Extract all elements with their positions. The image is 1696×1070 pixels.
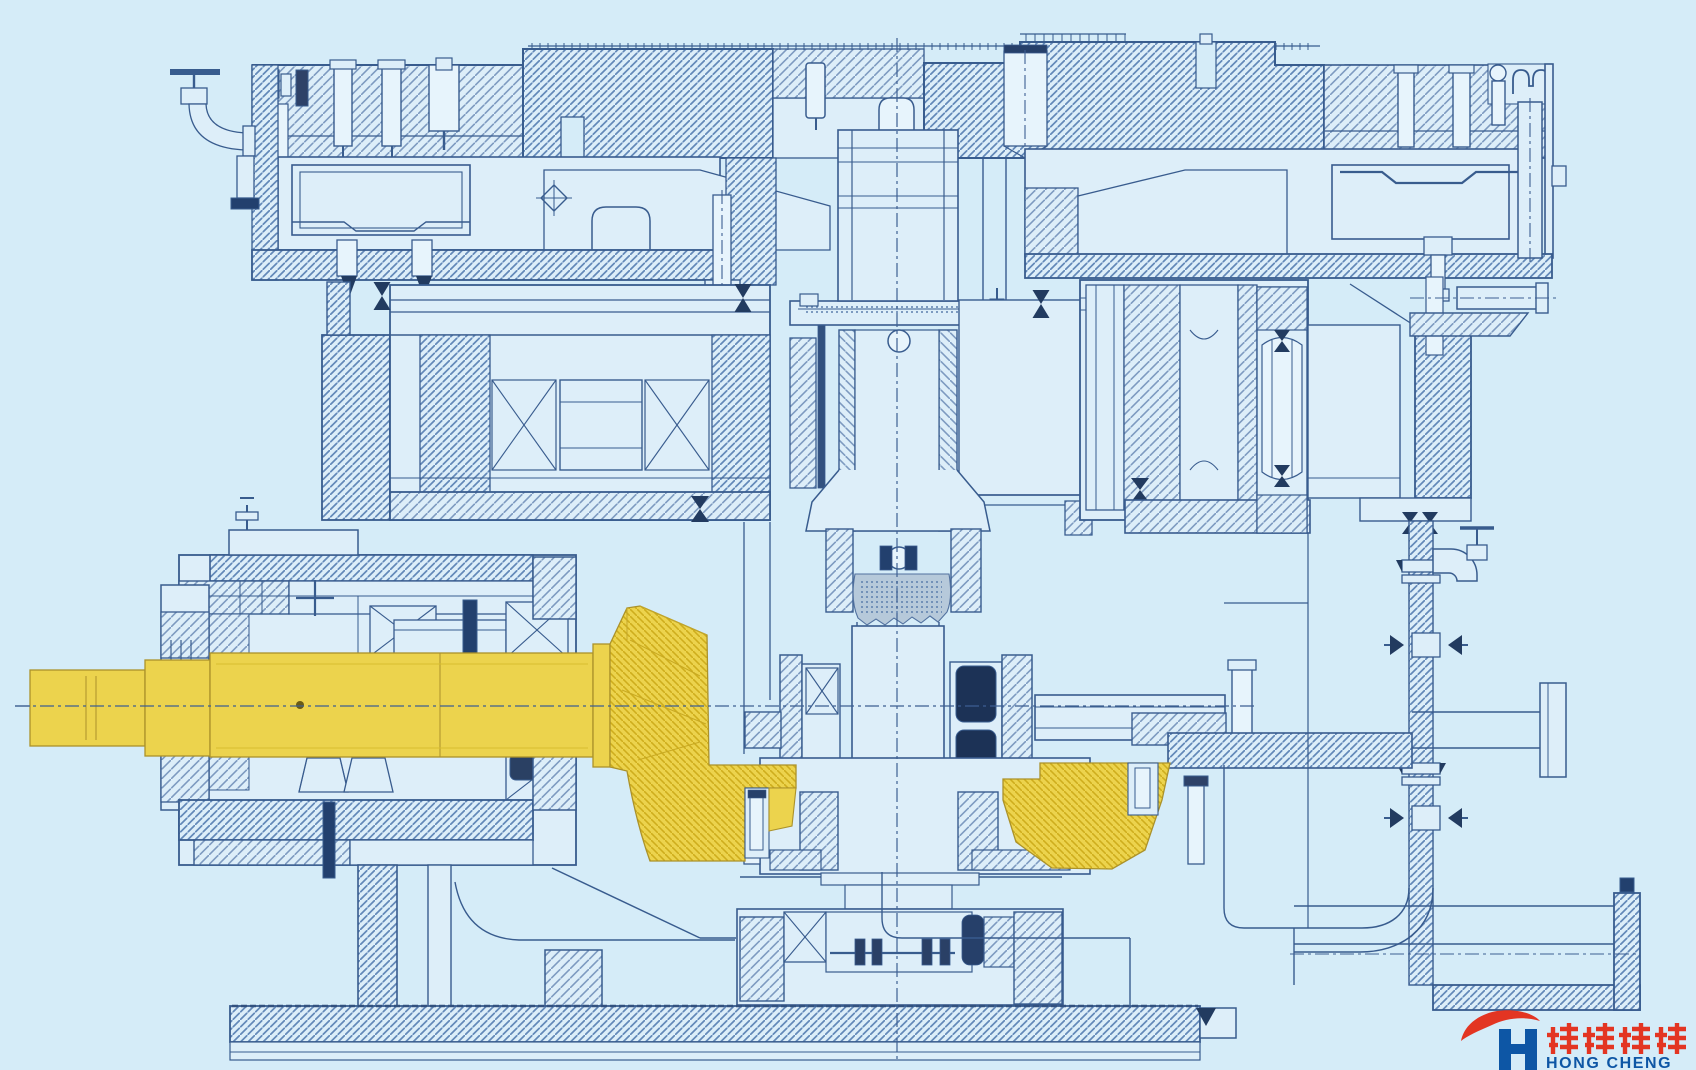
svg-text:HONG CHENG: HONG CHENG [1546, 1055, 1672, 1070]
